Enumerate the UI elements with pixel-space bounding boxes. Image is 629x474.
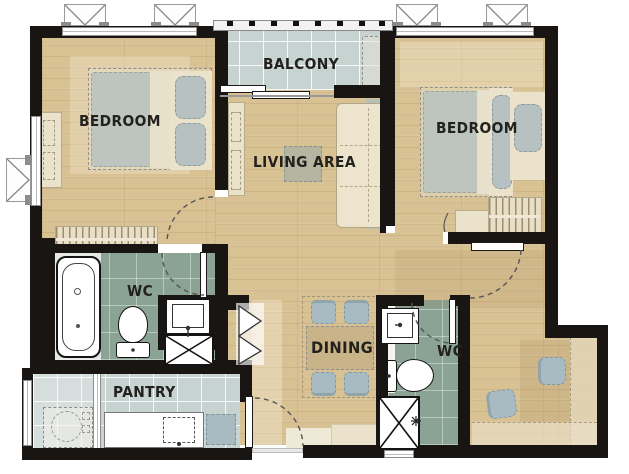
sliding-door-track: [220, 95, 334, 97]
room-label-balcony: BALCONY: [263, 55, 339, 73]
awning-window-icon: [64, 4, 106, 26]
washer-knob: [82, 425, 90, 433]
room-label-bedroom-left: BEDROOM: [79, 112, 161, 130]
awning-window-icon: [6, 158, 31, 202]
wall: [30, 238, 55, 374]
sofa-cushion-line: [340, 145, 382, 146]
door-leaf-wc-left: [200, 252, 207, 298]
kitchen-sink: [163, 417, 195, 443]
built-in-desk-bottom: [472, 422, 597, 445]
room-label-bedroom-right: BEDROOM: [436, 119, 518, 137]
service-shaft: [164, 334, 214, 366]
wall: [545, 26, 558, 338]
wall: [458, 295, 470, 448]
wall-cap: [386, 226, 395, 233]
dining-chair: [311, 372, 336, 396]
floor-plan: BEDROOM BALCONY LIVING AREA BEDROOM WC D…: [0, 0, 629, 474]
wash-basin-right-inner: [387, 313, 413, 338]
window: [23, 380, 32, 446]
wash-basin-left-inner: [172, 304, 204, 328]
toilet-left-bowl: [118, 306, 148, 343]
washer-knob: [82, 412, 90, 420]
dresser-drawers: [43, 152, 55, 180]
room-label-dining: DINING: [311, 338, 373, 357]
room-label-wc-left: WC: [127, 282, 153, 300]
bathtub-drain: [74, 288, 81, 295]
tv-console-detail: [231, 112, 241, 142]
wall: [380, 26, 395, 233]
awning-window-icon: [154, 4, 196, 26]
bathtub-inner: [62, 263, 95, 351]
wall: [215, 26, 228, 197]
desk-chair: [538, 357, 566, 385]
wall-cap: [443, 232, 448, 244]
washing-machine-drum: [51, 411, 82, 442]
balcony-railing: [213, 20, 393, 31]
dining-chair: [344, 372, 369, 396]
dining-chair: [311, 300, 336, 324]
desk-chair: [485, 388, 518, 420]
wall: [597, 330, 608, 458]
wall: [376, 295, 424, 306]
laundry-partition: [93, 368, 101, 450]
awning-window-icon: [396, 4, 438, 26]
door-leaf-bedroom-right: [471, 242, 524, 251]
room-label-wc-right: WC: [437, 342, 463, 360]
window: [396, 27, 534, 36]
wardrobe-right: [488, 197, 542, 235]
room-label-pantry: PANTRY: [113, 383, 176, 401]
dresser-drawers: [43, 120, 55, 146]
shaft-louver: [384, 450, 414, 458]
bifold-door-frame: [236, 303, 264, 365]
wall: [30, 360, 252, 374]
entrance-mat: [331, 424, 379, 447]
wall-cap: [215, 190, 228, 197]
bathtub-drain-dot: [76, 324, 80, 328]
wall: [303, 445, 608, 458]
door-leaf-entrance: [245, 396, 253, 448]
bed-right-duvet: [423, 91, 481, 193]
pillow: [175, 123, 206, 166]
pillow: [492, 95, 512, 189]
dining-chair: [344, 300, 369, 324]
window: [62, 27, 197, 36]
toilet-left-tank: [116, 342, 150, 358]
balcony-door-wall: [334, 85, 380, 98]
doorway: [158, 244, 202, 253]
sofa-cushion-line: [340, 186, 382, 187]
sofa-cushion-line: [368, 108, 369, 222]
entrance-threshold: [252, 448, 303, 453]
tv-console-detail: [231, 150, 241, 190]
door-leaf-wc-right: [449, 299, 456, 344]
nightstand-chair: [514, 104, 542, 152]
service-shaft: [378, 396, 420, 450]
window: [31, 116, 41, 206]
pillow: [175, 76, 206, 119]
room-label-living-area: LIVING AREA: [253, 153, 356, 171]
stove: [206, 414, 236, 445]
awning-window-icon: [486, 4, 528, 26]
wall: [22, 448, 252, 460]
